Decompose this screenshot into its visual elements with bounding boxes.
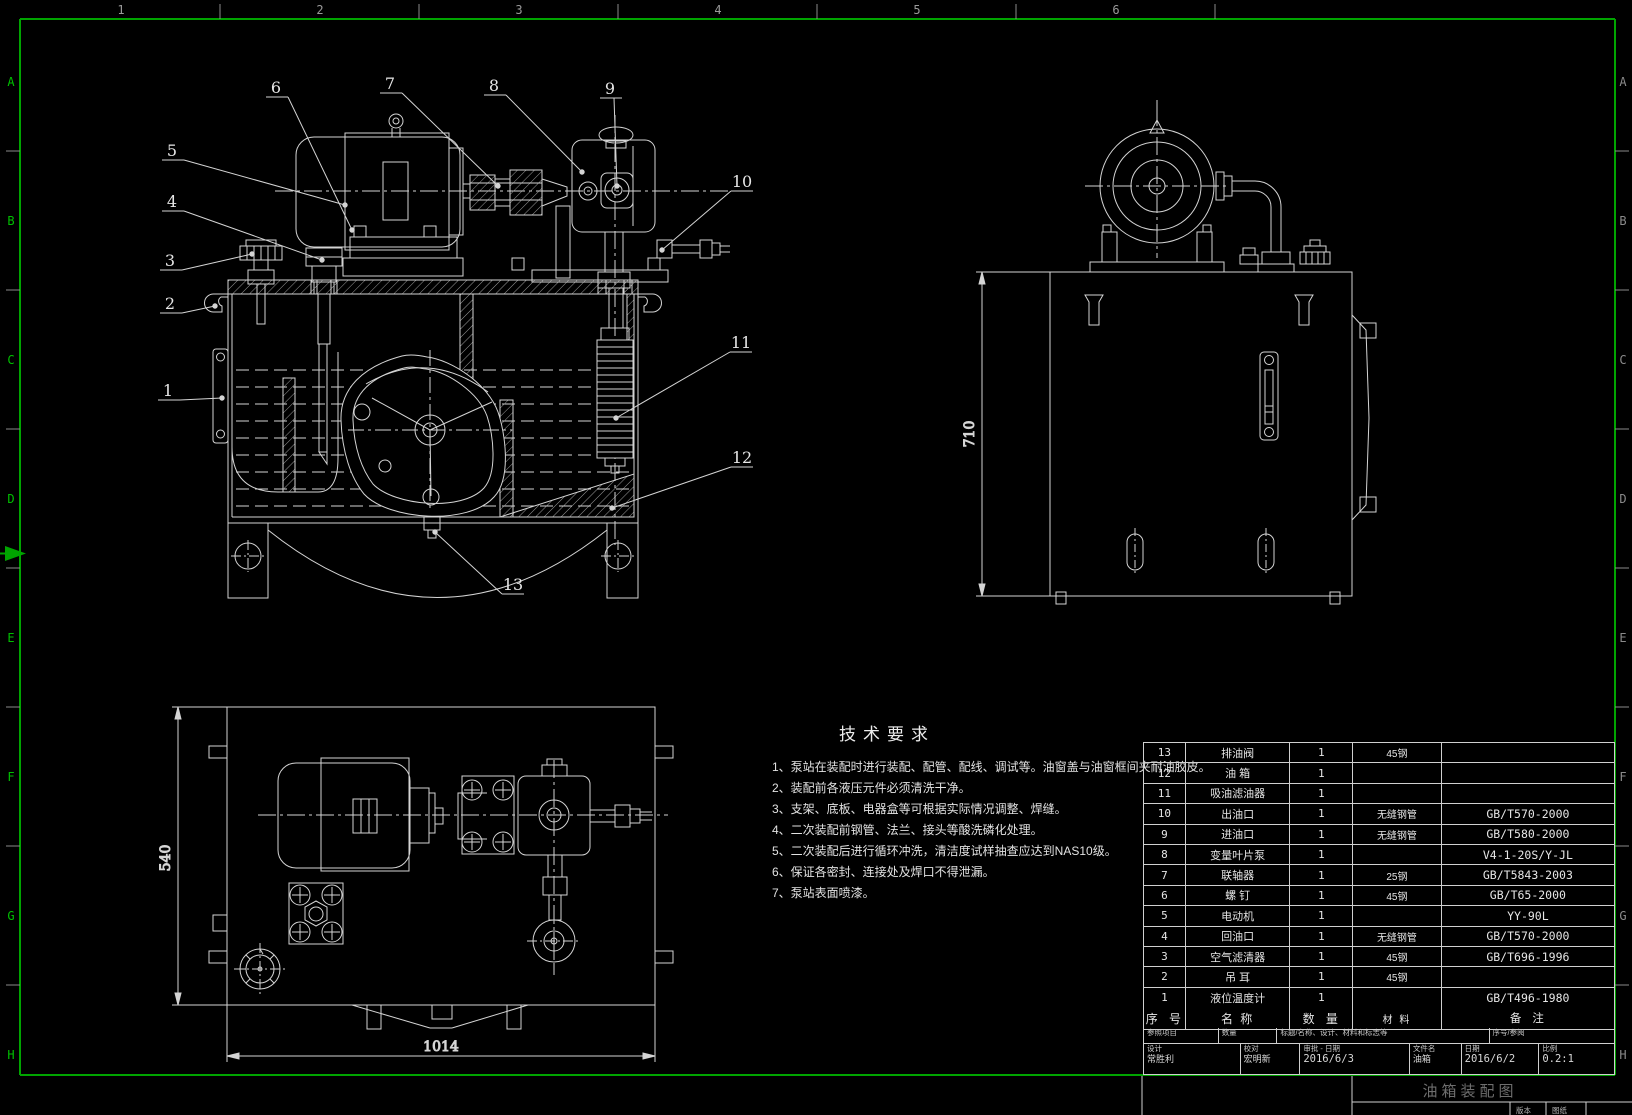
part-no-cell: 6 [1144, 886, 1186, 905]
table-row: 4 回油口 1 无缝钢管 GB/T570-2000 [1144, 927, 1614, 947]
check-label: 校对 [1244, 1045, 1297, 1053]
svg-text:4: 4 [714, 3, 721, 17]
part-note-cell: GB/T570-2000 [1442, 804, 1614, 823]
table-row: 5 电动机 1 YY-90L [1144, 906, 1614, 926]
part-note-cell: GB/T580-2000 [1442, 825, 1614, 844]
side-view [1050, 100, 1376, 604]
svg-text:F: F [1619, 770, 1626, 784]
part-qty-cell: 1 [1290, 906, 1353, 925]
part-note-cell: GB/T496-1980 [1442, 988, 1614, 1008]
part-material-cell [1353, 906, 1442, 925]
table-row: 12 油 箱 1 [1144, 763, 1614, 783]
balloon-label: 12 [732, 448, 752, 467]
scale-label: 比例 [1542, 1045, 1611, 1053]
part-material-cell [1353, 763, 1442, 782]
balloon-label: 9 [605, 79, 615, 98]
balloon-label: 10 [732, 172, 752, 191]
table-row: 13 排油阀 1 45钢 [1144, 743, 1614, 763]
part-material-cell [1353, 845, 1442, 864]
part-material-cell [1353, 988, 1442, 1008]
table-row: 8 变量叶片泵 1 V4-1-20S/Y-JL [1144, 845, 1614, 865]
part-name-cell: 进油口 [1186, 825, 1291, 844]
svg-text:D: D [1619, 492, 1626, 506]
table-row: 2 吊 耳 1 45钢 [1144, 967, 1614, 987]
svg-text:G: G [7, 909, 14, 923]
part-no-cell: 12 [1144, 763, 1186, 782]
date-label: 日期 [1465, 1045, 1536, 1053]
svg-text:E: E [7, 631, 14, 645]
part-note-cell: YY-90L [1442, 906, 1614, 925]
svg-text:D: D [7, 492, 14, 506]
part-qty-cell: 1 [1290, 804, 1353, 823]
part-qty-cell: 1 [1290, 886, 1353, 905]
svg-text:B: B [1619, 214, 1626, 228]
table-row: 11 吸油滤油器 1 [1144, 784, 1614, 804]
svg-text:A: A [1619, 75, 1627, 89]
table-header-row: 序 号 名 称 数 量 材 料 备 注 [1144, 1008, 1614, 1029]
part-qty-cell: 1 [1290, 967, 1353, 986]
part-name-cell: 出油口 [1186, 804, 1291, 823]
title-block-row2: 设计 常胜利 校对 宏明新 审批 - 日期 2016/6/3 文件名 油箱 日期… [1143, 1044, 1615, 1075]
header-name: 名 称 [1186, 1008, 1291, 1029]
tech-requirement-line: 4、二次装配前钢管、法兰、接头等酸洗磷化处理。 [772, 820, 1102, 841]
approve-date-label: 审批 - 日期 [1303, 1045, 1406, 1053]
part-material-cell: 无缝钢管 [1353, 804, 1442, 823]
svg-text:C: C [7, 353, 14, 367]
part-no-cell: 8 [1144, 845, 1186, 864]
part-name-cell: 联轴器 [1186, 865, 1291, 884]
check-value: 宏明新 [1244, 1053, 1297, 1065]
part-note-cell [1442, 967, 1614, 986]
table-row: 1 液位温度计 1 GB/T496-1980 [1144, 988, 1614, 1008]
part-qty-cell: 1 [1290, 988, 1353, 1008]
dim-1014: 1014 [423, 1039, 459, 1055]
table-row: 7 联轴器 1 25钢 GB/T5843-2003 [1144, 865, 1614, 885]
part-no-cell: 1 [1144, 988, 1186, 1008]
ref-project-label: 参照项目 [1147, 1029, 1215, 1037]
balloon-label: 3 [165, 251, 175, 270]
part-note-cell [1442, 763, 1614, 782]
part-note-cell: GB/T65-2000 [1442, 886, 1614, 905]
part-no-cell: 7 [1144, 865, 1186, 884]
table-row: 6 螺 钉 1 45钢 GB/T65-2000 [1144, 886, 1614, 906]
part-name-cell: 吊 耳 [1186, 967, 1291, 986]
part-material-cell: 45钢 [1353, 967, 1442, 986]
balloon-label: 2 [165, 294, 175, 313]
svg-text:2: 2 [316, 3, 323, 17]
svg-text:5: 5 [913, 3, 920, 17]
part-material-cell: 25钢 [1353, 865, 1442, 884]
qty-label: 数量 [1222, 1029, 1274, 1037]
part-qty-cell: 1 [1290, 927, 1353, 946]
part-name-cell: 液位温度计 [1186, 988, 1291, 1008]
design-label: 设计 [1147, 1045, 1237, 1053]
part-material-cell: 无缝钢管 [1353, 825, 1442, 844]
part-no-cell: 9 [1144, 825, 1186, 844]
part-qty-cell: 1 [1290, 865, 1353, 884]
front-view [205, 114, 735, 598]
cad-drawing-canvas: 1 2 3 4 5 6 A B C D E F G H A B C D E F … [0, 0, 1632, 1115]
centering-arrow-icon [0, 546, 26, 561]
part-qty-cell: 1 [1290, 825, 1353, 844]
std-label: 标题/名称、设计、材料和标志等 [1280, 1029, 1485, 1037]
part-material-cell: 无缝钢管 [1353, 927, 1442, 946]
part-note-cell [1442, 743, 1614, 762]
part-no-cell: 13 [1144, 743, 1186, 762]
svg-text:1: 1 [117, 3, 124, 17]
part-no-cell: 3 [1144, 947, 1186, 966]
part-material-cell [1353, 784, 1442, 803]
header-no: 序 号 [1144, 1008, 1186, 1029]
balloon-leaders [158, 93, 753, 594]
part-note-cell: GB/T696-1996 [1442, 947, 1614, 966]
version-label: 版本 [1516, 1105, 1531, 1115]
part-name-cell: 空气滤清器 [1186, 947, 1291, 966]
svg-text:C: C [1619, 353, 1626, 367]
header-material: 材 料 [1353, 1008, 1442, 1029]
scale-value: 0.2:1 [1542, 1053, 1611, 1065]
part-no-cell: 10 [1144, 804, 1186, 823]
parts-table-body: 13 排油阀 1 45钢 12 油 箱 1 11 吸油滤油器 1 10 出油口 … [1144, 743, 1614, 1008]
part-name-cell: 油 箱 [1186, 763, 1291, 782]
tech-requirements-list: 1、泵站在装配时进行装配、配管、配线、调试等。油窗盖与油窗框间夹耐油胶皮。2、装… [772, 757, 1102, 904]
tech-requirements: 技术要求 1、泵站在装配时进行装配、配管、配线、调试等。油窗盖与油窗框间夹耐油胶… [772, 720, 1102, 904]
part-note-cell: V4-1-20S/Y-JL [1442, 845, 1614, 864]
drawing-title: 油箱装配图 [1370, 1080, 1570, 1101]
dim-710: 710 [962, 421, 978, 448]
part-note-cell: GB/T5843-2003 [1442, 865, 1614, 884]
header-note: 备 注 [1442, 1008, 1614, 1029]
svg-text:3: 3 [515, 3, 522, 17]
table-row: 9 进油口 1 无缝钢管 GB/T580-2000 [1144, 825, 1614, 845]
tech-requirements-title: 技术要求 [772, 720, 1002, 745]
part-material-cell: 45钢 [1353, 947, 1442, 966]
part-name-cell: 螺 钉 [1186, 886, 1291, 905]
svg-text:6: 6 [1112, 3, 1119, 17]
table-row: 10 出油口 1 无缝钢管 GB/T570-2000 [1144, 804, 1614, 824]
part-qty-cell: 1 [1290, 845, 1353, 864]
part-note-cell [1442, 784, 1614, 803]
balloon-label: 11 [731, 333, 751, 352]
svg-text:E: E [1619, 631, 1626, 645]
part-no-cell: 11 [1144, 784, 1186, 803]
part-qty-cell: 1 [1290, 743, 1353, 762]
date-value: 2016/6/2 [1465, 1053, 1536, 1065]
header-qty: 数 量 [1290, 1008, 1353, 1029]
svg-text:A: A [7, 75, 15, 89]
part-no-cell: 2 [1144, 967, 1186, 986]
top-view [209, 707, 673, 1029]
serial-label: 序号/参阅 [1493, 1029, 1611, 1037]
balloon-label: 7 [385, 74, 395, 93]
part-name-cell: 变量叶片泵 [1186, 845, 1291, 864]
balloon-label: 1 [163, 381, 173, 400]
svg-text:F: F [7, 770, 14, 784]
part-name-cell: 回油口 [1186, 927, 1291, 946]
table-row: 3 空气滤清器 1 45钢 GB/T696-1996 [1144, 947, 1614, 967]
tech-requirement-line: 2、装配前各液压元件必须清洗干净。 [772, 778, 1102, 799]
tech-requirement-line: 6、保证各密封、连接处及焊口不得泄漏。 [772, 862, 1102, 883]
approve-date-value: 2016/6/3 [1303, 1053, 1406, 1065]
part-name-cell: 排油阀 [1186, 743, 1291, 762]
svg-text:G: G [1619, 909, 1626, 923]
part-no-cell: 4 [1144, 927, 1186, 946]
svg-text:B: B [7, 214, 14, 228]
balloon-labels: 1 2 3 4 5 6 7 8 9 10 11 12 13 [163, 74, 752, 594]
parts-table: 13 排油阀 1 45钢 12 油 箱 1 11 吸油滤油器 1 10 出油口 … [1143, 742, 1615, 1030]
tech-requirement-line: 3、支架、底板、电器盒等可根据实际情况调整、焊缝。 [772, 799, 1102, 820]
part-name-cell: 吸油滤油器 [1186, 784, 1291, 803]
part-qty-cell: 1 [1290, 763, 1353, 782]
part-no-cell: 5 [1144, 906, 1186, 925]
svg-text:H: H [1619, 1048, 1626, 1062]
filename-label: 文件名 [1413, 1045, 1458, 1053]
part-qty-cell: 1 [1290, 947, 1353, 966]
tech-requirement-line: 7、泵站表面喷漆。 [772, 883, 1102, 904]
balloon-label: 5 [167, 141, 177, 160]
part-name-cell: 电动机 [1186, 906, 1291, 925]
balloon-label: 4 [167, 192, 177, 211]
balloon-label: 13 [503, 575, 523, 594]
design-value: 常胜利 [1147, 1053, 1237, 1065]
balloon-label: 8 [489, 76, 499, 95]
filename-value: 油箱 [1413, 1053, 1458, 1065]
svg-text:H: H [7, 1048, 14, 1062]
part-note-cell: GB/T570-2000 [1442, 927, 1614, 946]
part-material-cell: 45钢 [1353, 886, 1442, 905]
tech-requirement-line: 1、泵站在装配时进行装配、配管、配线、调试等。油窗盖与油窗框间夹耐油胶皮。 [772, 757, 1102, 778]
part-qty-cell: 1 [1290, 784, 1353, 803]
balloon-label: 6 [271, 78, 281, 97]
tech-requirement-line: 5、二次装配后进行循环冲洗，清洁度试样抽查应达到NAS10级。 [772, 841, 1102, 862]
dim-540: 540 [158, 845, 174, 872]
part-material-cell: 45钢 [1353, 743, 1442, 762]
sheet-label: 图纸 [1552, 1105, 1567, 1115]
title-block-row1: 参照项目 数量 标题/名称、设计、材料和标志等 序号/参阅 [1143, 1028, 1615, 1044]
